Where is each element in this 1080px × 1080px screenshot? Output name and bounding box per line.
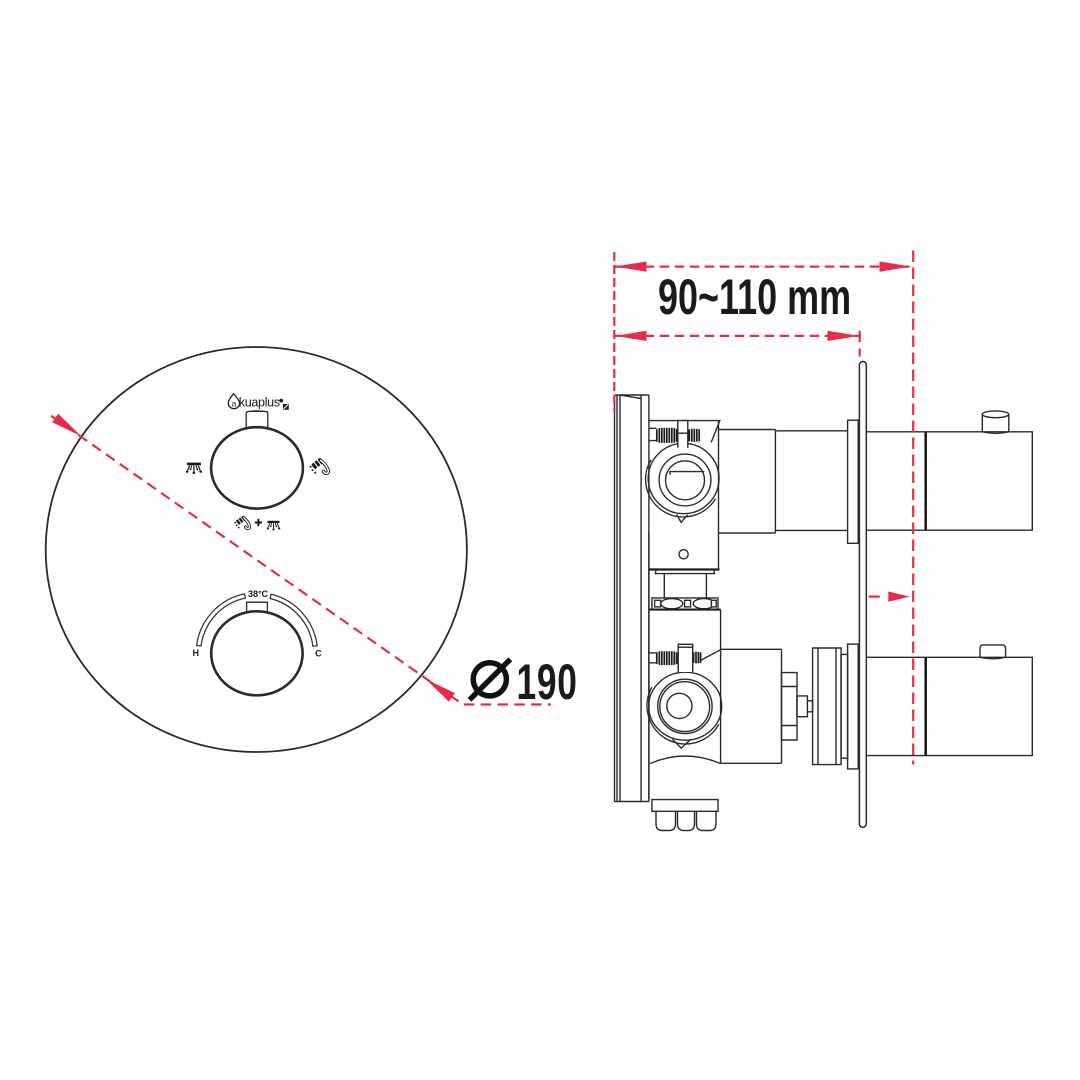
svg-text:a: a [232, 398, 237, 408]
svg-text:90~110 mm: 90~110 mm [658, 270, 851, 325]
svg-text:kuaplus: kuaplus [239, 395, 280, 409]
svg-text:190: 190 [517, 655, 578, 711]
svg-text:C: C [315, 648, 322, 658]
svg-text:H: H [193, 648, 200, 658]
svg-text:38°C: 38°C [248, 589, 269, 599]
